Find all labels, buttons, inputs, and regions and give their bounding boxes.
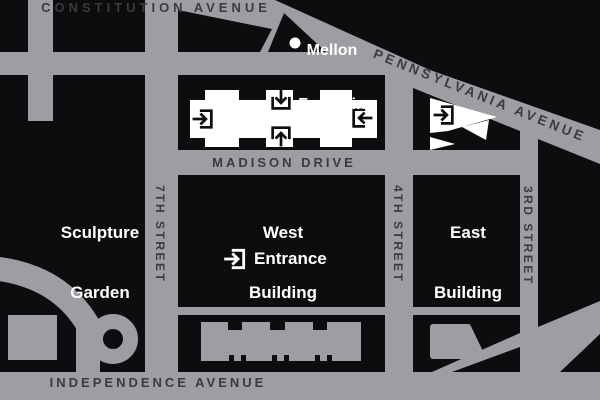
mellon-fountain-line2: Fountain	[272, 96, 392, 114]
independence-avenue-label: INDEPENDENCE AVENUE	[8, 375, 308, 390]
gallery-area-map: CONSTITUTION AVENUE PENNSYLVANIA AVENUE …	[0, 0, 600, 400]
mellon-fountain-label: Mellon Fountain	[272, 6, 392, 150]
entrance-legend-label: Entrance	[254, 249, 327, 269]
east-building-line1: East	[398, 223, 538, 243]
east-building-line2: Building	[398, 283, 538, 303]
building-tick	[229, 355, 234, 361]
west-building-line1: West	[213, 223, 353, 243]
mellon-fountain-line1: Mellon	[272, 42, 392, 60]
west-building-line2: Building	[213, 283, 353, 303]
sculpture-garden-line1: Sculpture	[30, 223, 170, 243]
ninth-street-stub	[28, 75, 53, 121]
building-tick	[241, 355, 246, 361]
constitution-avenue-label: CONSTITUTION AVENUE	[0, 0, 312, 15]
building-tick	[272, 355, 277, 361]
sculpture-garden-line2: Garden	[30, 283, 170, 303]
madison-drive-label: MADISON DRIVE	[184, 155, 384, 170]
sculpture-garden-label: Sculpture Garden	[30, 183, 170, 343]
building-tick	[315, 355, 320, 361]
block-east-of-third	[538, 139, 600, 327]
building-tick	[284, 355, 289, 361]
east-building-label: East Building	[398, 183, 538, 343]
building-tick	[327, 355, 332, 361]
